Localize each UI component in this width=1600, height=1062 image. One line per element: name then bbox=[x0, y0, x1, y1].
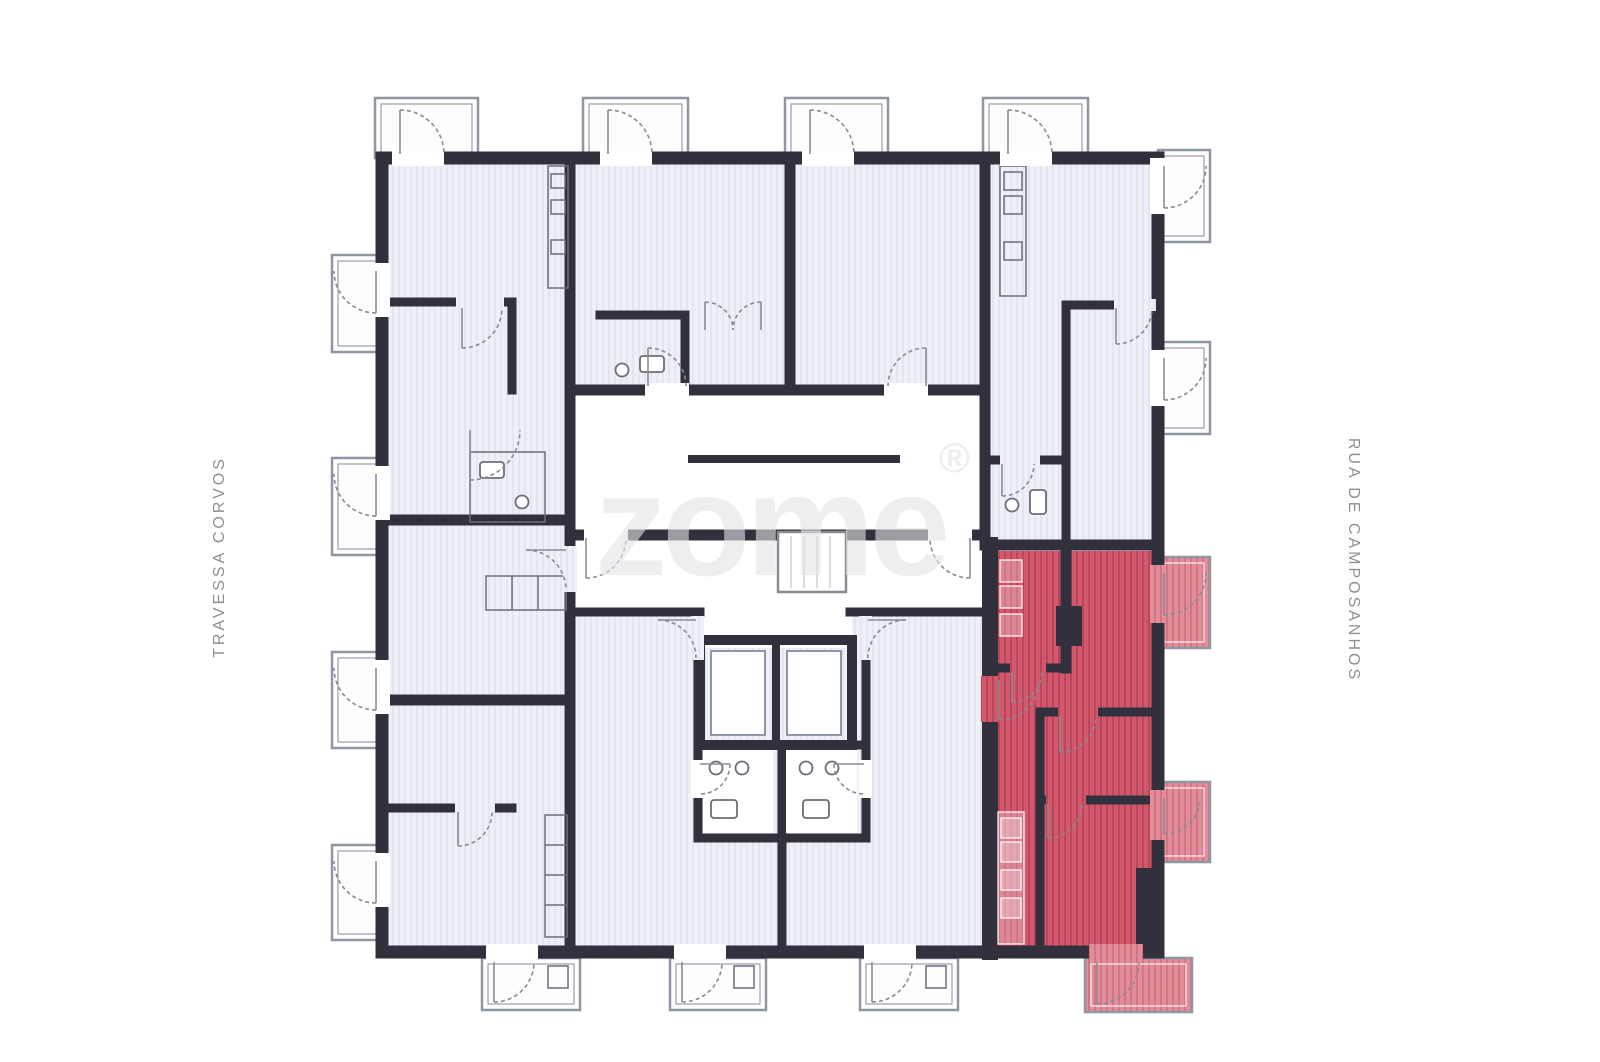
appliance-icon bbox=[1000, 560, 1022, 582]
floorplan-page: zome ® TRAVESSA CORVOS RUA DE CAMPOSANHO… bbox=[0, 0, 1600, 1062]
toilet-icon bbox=[803, 800, 829, 818]
street-label-left: TRAVESSA CORVOS bbox=[211, 456, 228, 658]
sink-icon bbox=[516, 496, 529, 509]
appliance-icon bbox=[1001, 898, 1021, 918]
toilet-icon bbox=[1030, 490, 1046, 514]
bathroom-left bbox=[703, 750, 773, 833]
sink-icon bbox=[736, 762, 749, 775]
appliance-icon bbox=[1000, 586, 1022, 608]
toilet-icon bbox=[640, 356, 664, 372]
service-shaft bbox=[1056, 606, 1082, 646]
balcony-top-2 bbox=[583, 98, 688, 158]
balcony-top-3 bbox=[785, 98, 888, 158]
balcony-bottom-red bbox=[1085, 958, 1192, 1012]
elevator-shaft-left bbox=[711, 651, 765, 735]
balcony-top-4 bbox=[983, 98, 1088, 158]
appliance-icon bbox=[1001, 818, 1021, 838]
watermark-logo: zome bbox=[595, 444, 946, 606]
elevator-shaft-right bbox=[787, 651, 841, 735]
appliance-icon bbox=[1001, 870, 1021, 890]
appliance-icon bbox=[1001, 842, 1021, 862]
bathroom-right bbox=[786, 750, 857, 833]
sink-icon bbox=[1006, 499, 1019, 512]
street-label-right: RUA DE CAMPOSANHOS bbox=[1345, 438, 1362, 682]
appliance-icon bbox=[1000, 614, 1022, 636]
toilet-icon bbox=[711, 800, 737, 818]
floor-plan: zome ® TRAVESSA CORVOS RUA DE CAMPOSANHO… bbox=[0, 0, 1600, 1062]
sink-icon bbox=[800, 762, 813, 775]
balcony-top-1 bbox=[375, 98, 478, 158]
sink-icon bbox=[616, 364, 629, 377]
